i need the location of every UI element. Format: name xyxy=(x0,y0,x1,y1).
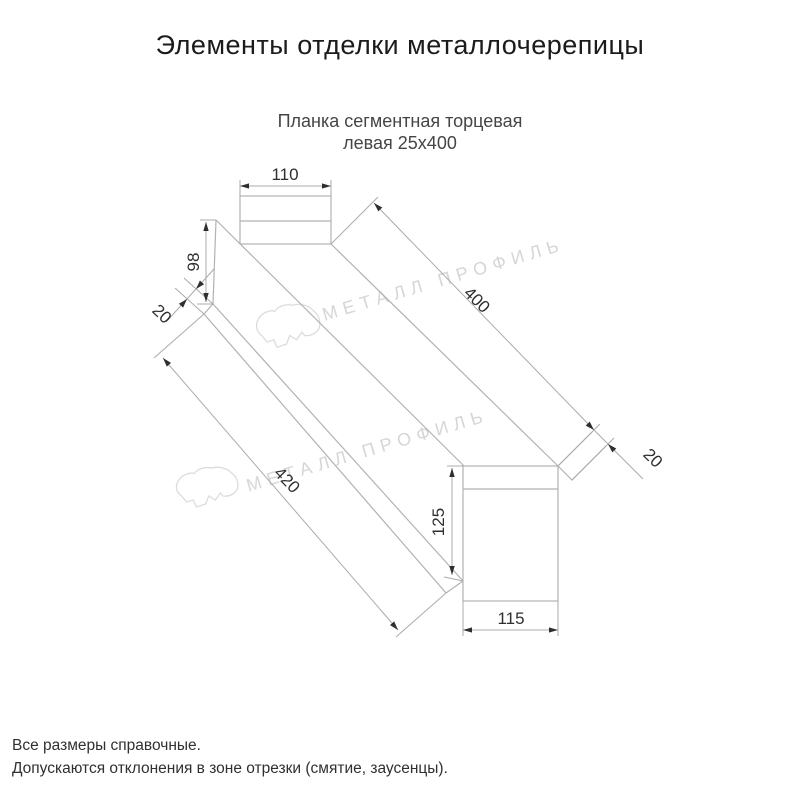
cloud-logo-icon xyxy=(257,304,320,347)
dim-420-label: 420 xyxy=(270,463,303,497)
dim-arrow xyxy=(240,183,249,188)
dim-20-right-label: 20 xyxy=(639,445,666,472)
dimension-lines xyxy=(163,186,643,630)
dim-115-label: 115 xyxy=(497,609,524,628)
dim-400-label: 400 xyxy=(460,283,494,316)
footer-note-line1: Все размеры справочные. xyxy=(12,737,201,755)
footer-note-line2: Допускаются отклонения в зоне отрезки (с… xyxy=(12,760,448,778)
dim-arrow xyxy=(203,293,208,302)
cloud-logo-icon xyxy=(176,467,237,507)
dim-98-label: 98 xyxy=(184,253,203,272)
dim-arrow xyxy=(463,627,472,632)
dim-arrow xyxy=(203,222,208,231)
dim-110-label: 110 xyxy=(271,165,298,184)
dim-arrow xyxy=(322,183,331,188)
technical-drawing: 110 98 20 400 20 420 125 115 xyxy=(0,0,800,800)
dim-arrow xyxy=(449,468,454,477)
drawing-sheet: Элементы отделки металлочерепицы Планка … xyxy=(0,0,800,800)
extension-lines xyxy=(154,180,614,637)
dim-arrows xyxy=(163,183,616,632)
part-outline xyxy=(204,196,606,601)
dim-125-label: 125 xyxy=(429,508,448,536)
dim-20-left-label: 20 xyxy=(148,301,175,328)
dim-arrow xyxy=(549,627,558,632)
